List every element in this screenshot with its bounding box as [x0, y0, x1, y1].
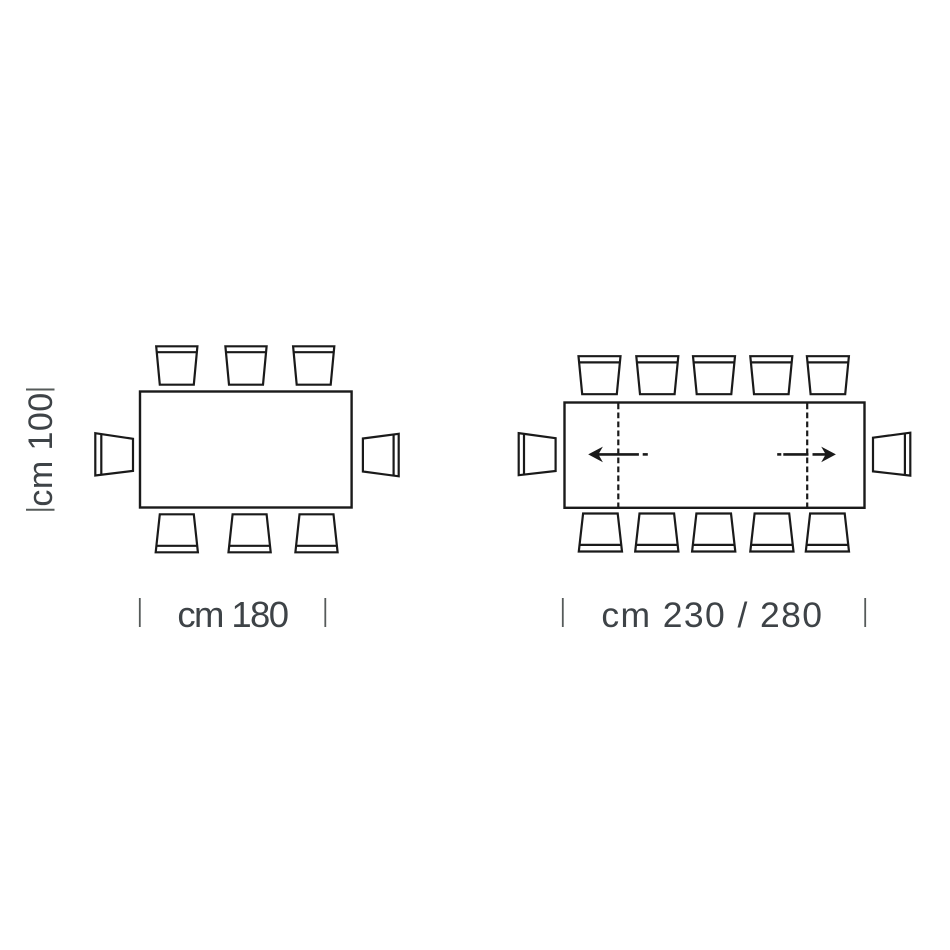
svg-text:cm 230 / 280: cm 230 / 280 [601, 595, 823, 635]
svg-text:cm 100: cm 100 [22, 392, 60, 506]
svg-text:cm 180: cm 180 [177, 594, 287, 635]
